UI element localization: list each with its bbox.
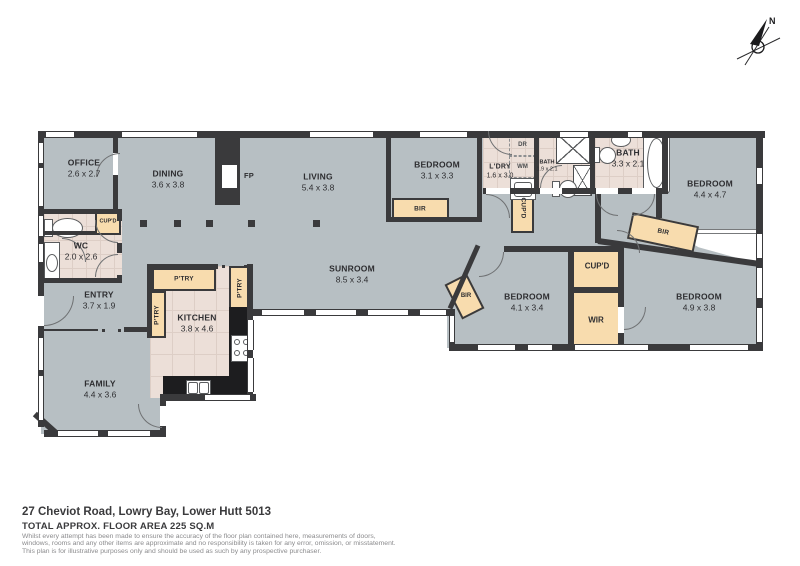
opening-marker (222, 265, 225, 268)
opening-marker (361, 311, 364, 314)
firebox (222, 165, 237, 188)
post (140, 220, 147, 227)
wall (590, 131, 595, 188)
toilet (52, 218, 83, 238)
washer-label: WM (517, 164, 528, 170)
window (628, 131, 642, 138)
window (690, 344, 748, 351)
wall (113, 131, 118, 153)
wall (568, 246, 574, 347)
window (478, 344, 515, 351)
pantry-label-right: P'TRY (237, 278, 246, 298)
room-label-laundry: L'DRY 1.6 x 3.0 (487, 163, 514, 182)
room-label-family: FAMILY 4.4 x 3.6 (84, 379, 117, 402)
opening-marker (752, 346, 755, 349)
basin (46, 254, 58, 272)
wall (41, 209, 118, 214)
window (38, 216, 44, 236)
room-label-bedroom2: BEDROOM 4.4 x 4.7 (687, 179, 733, 202)
window (528, 344, 552, 351)
window (262, 309, 304, 316)
door-opening (486, 188, 510, 194)
post (206, 220, 213, 227)
address-title: 27 Cheviot Road, Lowry Bay, Lower Hutt 5… (22, 506, 271, 518)
opening-marker (244, 265, 247, 268)
disclaimer-line-2: windows, rooms and any other items are a… (22, 540, 396, 547)
room-label-bath-small: BATH 1.9 x 2.1 (536, 160, 557, 175)
wall (386, 217, 482, 222)
opening-marker (118, 329, 121, 332)
window (756, 308, 763, 342)
window (756, 168, 763, 184)
room-label-bedroom1: BEDROOM 3.1 x 3.3 (414, 160, 460, 183)
window (58, 430, 98, 437)
window (205, 394, 250, 401)
floor-plan-page: DR WM (0, 0, 800, 566)
wall (477, 131, 482, 222)
cupboard-label-room: CUP'D (585, 262, 610, 273)
wall (117, 243, 122, 253)
wall (147, 264, 218, 269)
room-label-bedroom4: BEDROOM 4.9 x 3.8 (676, 292, 722, 315)
wall (618, 246, 624, 307)
fireplace-label: FP (244, 171, 254, 181)
window (38, 143, 44, 163)
sink-bowl (188, 382, 198, 394)
wall (656, 188, 662, 218)
room-label-office: OFFICE 2.6 x 2.7 (68, 158, 101, 181)
opening-marker (102, 329, 105, 332)
window (247, 358, 254, 392)
disclaimer-text: Whilst every attempt has been made to en… (22, 533, 396, 555)
compass: N (733, 12, 789, 68)
compass-north-label: N (769, 16, 776, 26)
post (248, 220, 255, 227)
cupboard-label-wc: CUP'D (100, 218, 117, 225)
window (38, 244, 44, 262)
opening-marker (413, 311, 416, 314)
walk-in-robe-label: WIR (588, 316, 604, 327)
window (756, 268, 763, 298)
opening-marker (309, 311, 312, 314)
room-label-wc: WC 2.0 x 2.6 (65, 241, 98, 264)
window (46, 131, 74, 138)
window (108, 430, 150, 437)
wall (504, 246, 572, 252)
cupboard-label-hall: CUP'D (518, 198, 527, 219)
wall (386, 131, 391, 222)
room-label-sunroom: SUNROOM 8.5 x 3.4 (329, 264, 375, 287)
window (247, 320, 254, 350)
window (420, 309, 446, 316)
dryer-label: DR (518, 142, 527, 148)
sink-bowl (199, 382, 209, 394)
room-label-entry: ENTRY 3.7 x 1.9 (83, 290, 116, 313)
door-opening (540, 188, 562, 194)
window (310, 131, 373, 138)
wall (124, 327, 147, 332)
burner (234, 350, 240, 356)
window (38, 338, 44, 370)
pantry-label-left: P'TRY (154, 305, 163, 325)
robe-label-bedroom3: BIR (461, 292, 471, 300)
window (368, 309, 408, 316)
room-label-dining: DINING 3.6 x 3.8 (152, 169, 185, 192)
room-label-living: LIVING 5.4 x 3.8 (302, 172, 335, 195)
window (38, 168, 44, 206)
window (420, 131, 467, 138)
wall (572, 246, 622, 252)
opening-marker (685, 346, 688, 349)
robe-label-bedroom1: BIR (414, 206, 426, 215)
window (560, 131, 588, 138)
room-label-bedroom3: BEDROOM 4.1 x 3.4 (504, 292, 550, 315)
wall (41, 278, 122, 283)
window (316, 309, 356, 316)
room-label-kitchen: KITCHEN 3.8 x 4.6 (177, 313, 216, 336)
window (756, 234, 763, 258)
wall (44, 231, 95, 235)
burner (234, 339, 240, 345)
post (313, 220, 320, 227)
window (38, 376, 44, 420)
disclaimer-line-3: This plan is for illustrative purposes o… (22, 548, 396, 555)
wall (572, 287, 622, 292)
disclaimer-line-1: Whilst every attempt has been made to en… (22, 533, 396, 540)
wall (147, 264, 152, 338)
floor-area-text: TOTAL APPROX. FLOOR AREA 225 SQ.M (22, 521, 214, 532)
wall (662, 131, 668, 194)
compass-icon: N (733, 12, 789, 68)
half-wall (44, 329, 98, 331)
window (575, 344, 648, 351)
room-label-bath-main: BATH 3.3 x 2.1 (612, 148, 645, 171)
window (122, 131, 197, 138)
post (174, 220, 181, 227)
window (449, 316, 455, 342)
pantry-label-top: P'TRY (174, 276, 194, 285)
